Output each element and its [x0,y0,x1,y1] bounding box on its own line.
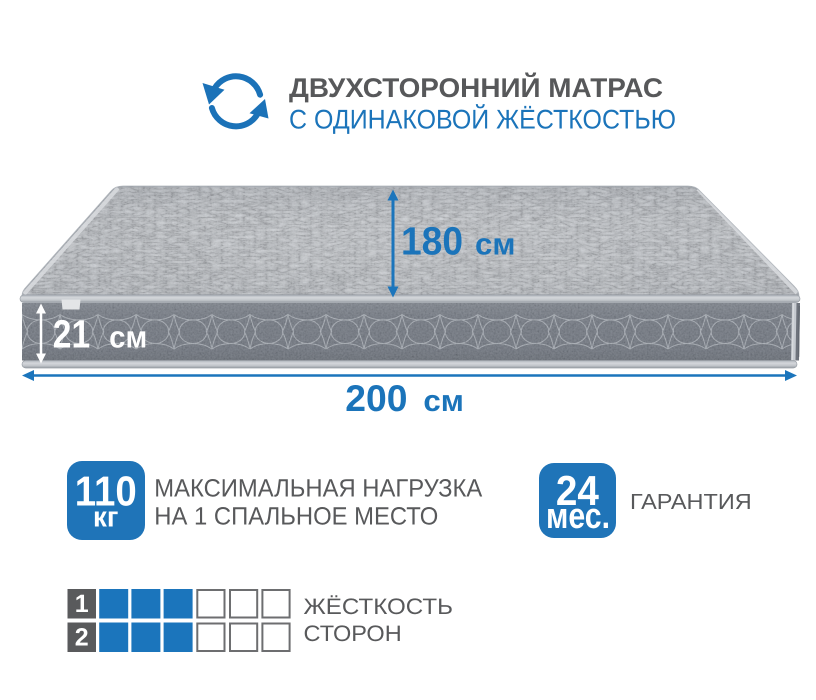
svg-text:ЖЁСТКОСТЬ: ЖЁСТКОСТЬ [304,594,454,619]
svg-text:см: см [109,320,147,354]
svg-text:мес.: мес. [546,495,610,536]
svg-text:МАКСИМАЛЬНАЯ НАГРУЗКА: МАКСИМАЛЬНАЯ НАГРУЗКА [154,475,482,503]
svg-text:кг: кг [93,501,119,533]
svg-text:С ОДИНАКОВОЙ ЖЁСТКОСТЬЮ: С ОДИНАКОВОЙ ЖЁСТКОСТЬЮ [289,103,676,134]
svg-text:180: 180 [401,220,463,264]
svg-text:см: см [475,228,516,262]
svg-text:ГАРАНТИЯ: ГАРАНТИЯ [630,489,752,514]
svg-text:21: 21 [53,312,90,356]
svg-text:200: 200 [345,377,407,419]
svg-text:ДВУХСТОРОННИЙ МАТРАС: ДВУХСТОРОННИЙ МАТРАС [289,72,663,103]
svg-text:2: 2 [75,624,89,652]
svg-text:НА 1 СПАЛЬНОЕ МЕСТО: НА 1 СПАЛЬНОЕ МЕСТО [154,503,438,531]
svg-text:1: 1 [75,590,89,618]
svg-text:СТОРОН: СТОРОН [304,621,402,646]
svg-text:см: см [423,385,464,418]
